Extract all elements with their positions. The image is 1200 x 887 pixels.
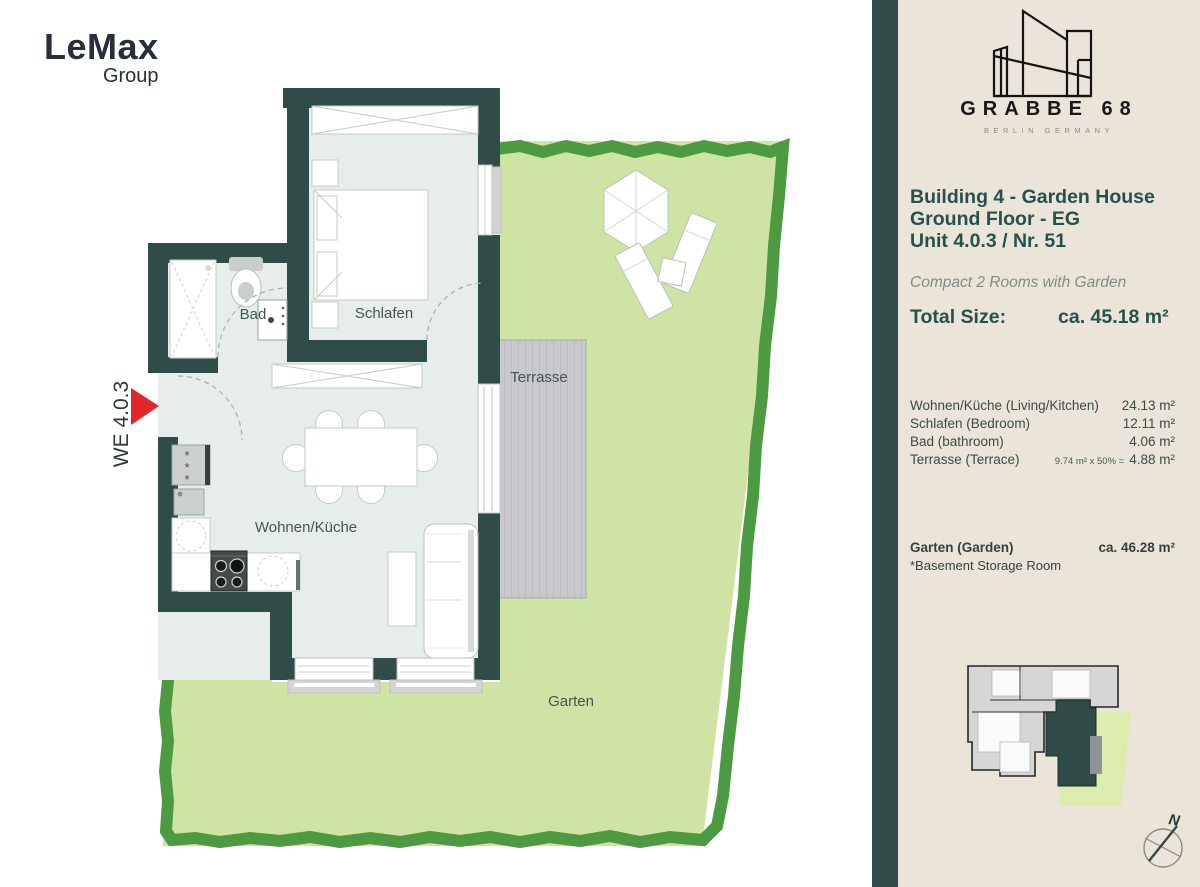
site-terrace (1090, 736, 1102, 774)
grabbe68-logo-icon (990, 8, 1093, 100)
total-size-label: Total Size: (910, 306, 1006, 329)
terrace-calc: 9.74 m² x 50% = (1055, 453, 1124, 471)
label-garten: Garten (548, 693, 594, 710)
room-value: 12.11 m² (1123, 415, 1175, 433)
coffee-table (388, 552, 416, 626)
bedroom-window (478, 165, 501, 235)
unit-label: WE 4.0.3 (110, 381, 133, 467)
living-window (288, 658, 380, 693)
compass-icon: N (1144, 811, 1182, 867)
fridge-icon: * * * (172, 445, 210, 487)
label-bad: Bad (240, 306, 267, 323)
sideboard-icon (272, 364, 422, 388)
entrance-arrow-icon (131, 388, 159, 425)
sofa-icon (424, 524, 478, 658)
info-panel: GRABBE 68 BERLIN GERMANY Building 4 - Ga… (898, 0, 1200, 887)
garden-label: Garten (Garden) (910, 539, 1014, 557)
bed-icon (314, 190, 428, 300)
room-label: Bad (bathroom) (910, 433, 1004, 451)
table-row: Bad (bathroom) 4.06 m² (910, 433, 1175, 451)
room-value: 4.88 m² (1129, 451, 1175, 469)
project-location: BERLIN GERMANY (898, 126, 1200, 135)
panel-divider (872, 0, 898, 887)
label-schlafen: Schlafen (355, 305, 413, 322)
site-plan: N (950, 655, 1200, 887)
unit-subtitle: Compact 2 Rooms with Garden (910, 274, 1126, 292)
nightstand (312, 160, 338, 186)
room-label: Schlafen (Bedroom) (910, 415, 1030, 433)
room-value: 4.06 m² (1129, 433, 1175, 451)
basement-note: *Basement Storage Room (910, 558, 1061, 573)
project-name: GRABBE 68 (898, 98, 1200, 121)
stove-icon (211, 551, 247, 591)
room-label: Terrasse (Terrace) (910, 451, 1020, 469)
svg-text:*: * (184, 472, 189, 487)
room-label: Wohnen/Küche (Living/Kitchen) (910, 397, 1099, 415)
garden-row: Garten (Garden) ca. 46.28 m² (910, 539, 1175, 557)
site-unit-highlight (1046, 700, 1096, 786)
heading-line2: Ground Floor - EG (910, 208, 1155, 230)
kitchen-counter (172, 518, 210, 554)
wardrobe-icon (312, 106, 478, 134)
label-terrasse: Terrasse (510, 369, 568, 386)
entrance-marker: WE 4.0.3 (110, 381, 159, 467)
table-row: Terrasse (Terrace) 9.74 m² x 50% = 4.88 … (910, 451, 1175, 469)
garden-table (658, 258, 686, 286)
nightstand (312, 302, 338, 328)
table-row: Wohnen/Küche (Living/Kitchen) 24.13 m² (910, 397, 1175, 415)
room-value: 24.13 m² (1122, 397, 1175, 415)
heading-line1: Building 4 - Garden House (910, 186, 1155, 208)
heading-line3: Unit 4.0.3 / Nr. 51 (910, 230, 1155, 252)
total-size-value: ca. 45.18 m² (1058, 306, 1169, 329)
living-window (390, 658, 482, 693)
dining-table (305, 428, 417, 486)
unit-heading: Building 4 - Garden House Ground Floor -… (910, 186, 1155, 252)
floor-plan-drawing: * * * (0, 0, 872, 887)
compass-n-label: N (1167, 811, 1182, 830)
floorplan-sheet: LeMax Group (0, 0, 1200, 887)
terrace-door (478, 384, 500, 513)
table-row: Schlafen (Bedroom) 12.11 m² (910, 415, 1175, 433)
label-wohnen: Wohnen/Küche (255, 519, 357, 536)
shower-icon (170, 260, 216, 358)
garden-value: ca. 46.28 m² (1098, 539, 1175, 557)
room-table: Wohnen/Küche (Living/Kitchen) 24.13 m² S… (910, 397, 1175, 469)
